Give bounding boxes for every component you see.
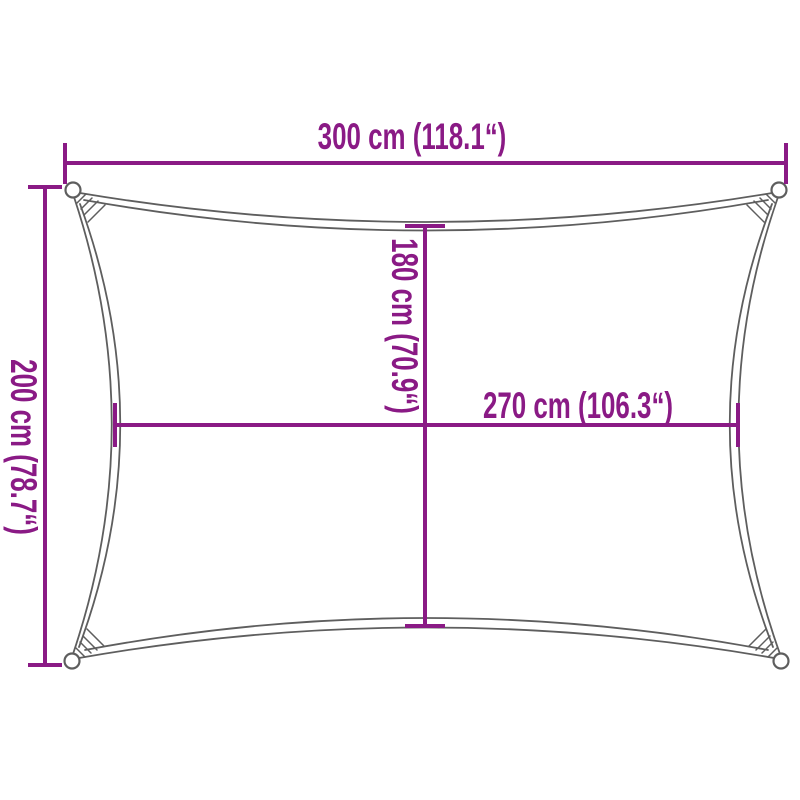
dimension-label-top-width: 300 cm (118.1“)	[160, 117, 664, 157]
dimension-label-left-height: 200 cm (78.7“)	[3, 335, 43, 559]
dimension-label-center-width: 270 cm (106.3“)	[466, 386, 690, 426]
product-dimension-diagram: 300 cm (118.1“) 200 cm (78.7“) 180 cm (7…	[0, 0, 800, 800]
corner-loop-top-left	[66, 183, 81, 198]
corner-loop-top-right	[772, 183, 787, 198]
sail-left-edge-outer	[73, 197, 112, 654]
corner-loop-bottom-right	[774, 654, 789, 669]
sail-top-edge-outer	[80, 193, 772, 222]
sail-bottom-edge-outer	[79, 628, 774, 659]
corner-loop-bottom-left	[65, 654, 80, 669]
sail-right-edge-outer	[738, 197, 780, 654]
dimension-label-center-height: 180 cm (70.9“)	[384, 214, 424, 438]
